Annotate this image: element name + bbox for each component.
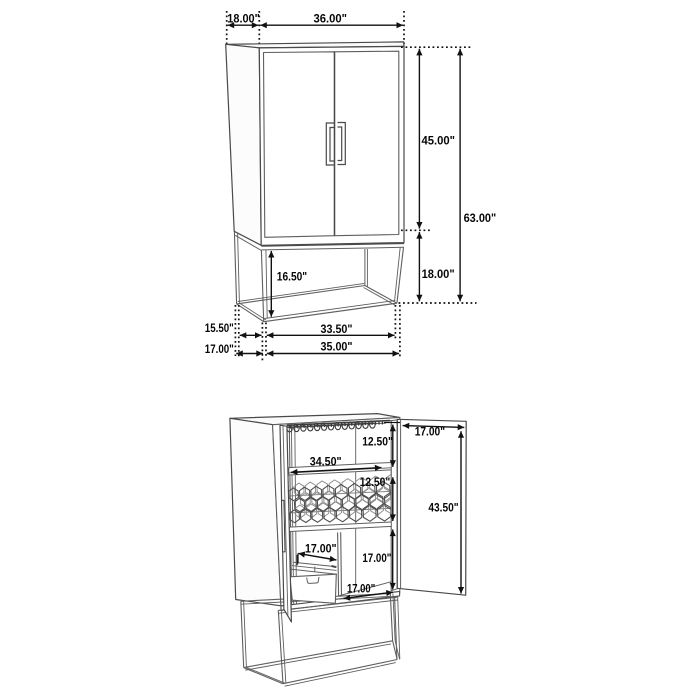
svg-text:17.00": 17.00": [205, 342, 234, 356]
svg-text:17.00": 17.00": [415, 424, 445, 438]
svg-text:17.00": 17.00": [347, 582, 375, 596]
svg-text:12.50": 12.50": [362, 435, 393, 449]
svg-text:18.00": 18.00": [227, 11, 259, 25]
svg-text:45.00": 45.00": [422, 134, 456, 148]
svg-text:16.50": 16.50": [277, 269, 307, 283]
svg-text:18.00": 18.00": [422, 267, 455, 281]
svg-text:12.50": 12.50": [360, 475, 391, 489]
svg-text:15.50": 15.50": [205, 321, 234, 335]
svg-text:43.50": 43.50": [428, 501, 458, 515]
svg-text:63.00": 63.00": [464, 211, 497, 225]
svg-text:35.00": 35.00": [321, 340, 353, 354]
svg-text:17.00": 17.00": [362, 551, 391, 565]
svg-text:17.00": 17.00": [305, 541, 337, 555]
svg-text:36.00": 36.00": [314, 11, 348, 25]
svg-text:34.50": 34.50": [310, 454, 342, 468]
svg-text:33.50": 33.50": [321, 322, 353, 336]
